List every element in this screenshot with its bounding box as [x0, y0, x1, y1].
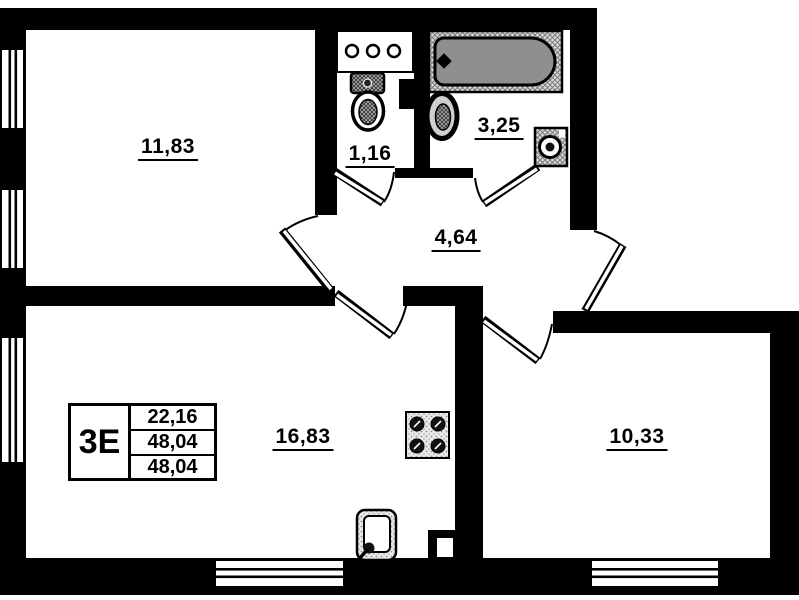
apartment-area-row: 48,04	[131, 429, 214, 454]
room-area-label-kitchen-living: 16,83	[272, 426, 333, 451]
room-area-label-bedroom: 10,33	[606, 426, 667, 451]
shelf-with-meters-icon	[337, 31, 413, 72]
apartment-areas: 22,16 48,04 48,04	[131, 406, 214, 478]
toilet-icon	[351, 73, 384, 130]
floor-plan: 11,83 1,16 3,25 4,64 16,83 10,33 3Е 22,1…	[0, 0, 799, 600]
apartment-area-row: 48,04	[131, 454, 214, 479]
door-bathroom	[475, 167, 538, 204]
apartment-info-box: 3Е 22,16 48,04 48,04	[68, 403, 217, 481]
window-room-top-left-1	[2, 50, 23, 128]
washing-machine-icon	[535, 128, 567, 166]
door-wc	[334, 171, 394, 203]
room-area-label-top-left: 11,83	[138, 136, 198, 161]
room-area-label-hallway: 4,64	[432, 227, 481, 252]
window-kitchen-bottom	[216, 561, 343, 586]
vent-shaft-icon	[436, 537, 454, 558]
room-area-label-bathroom: 3,25	[475, 115, 524, 140]
door-entrance	[585, 231, 623, 311]
door-bedroom	[483, 319, 552, 361]
door-kitchen-living	[336, 290, 409, 336]
door-room-top-left	[282, 216, 332, 292]
apartment-area-row: 22,16	[131, 406, 214, 429]
kitchen-sink-icon	[357, 510, 396, 560]
stove-icon	[406, 412, 449, 458]
window-bedroom-bottom	[592, 561, 718, 586]
bathtub-icon	[429, 31, 562, 92]
apartment-type-label: 3Е	[71, 406, 131, 478]
room-area-label-wc: 1,16	[346, 143, 395, 168]
wash-basin-icon	[427, 94, 457, 139]
floor-plan-drawing	[0, 0, 799, 600]
walls	[0, 8, 799, 595]
window-room-top-left-2	[2, 190, 23, 268]
window-kitchen-left	[2, 338, 23, 462]
